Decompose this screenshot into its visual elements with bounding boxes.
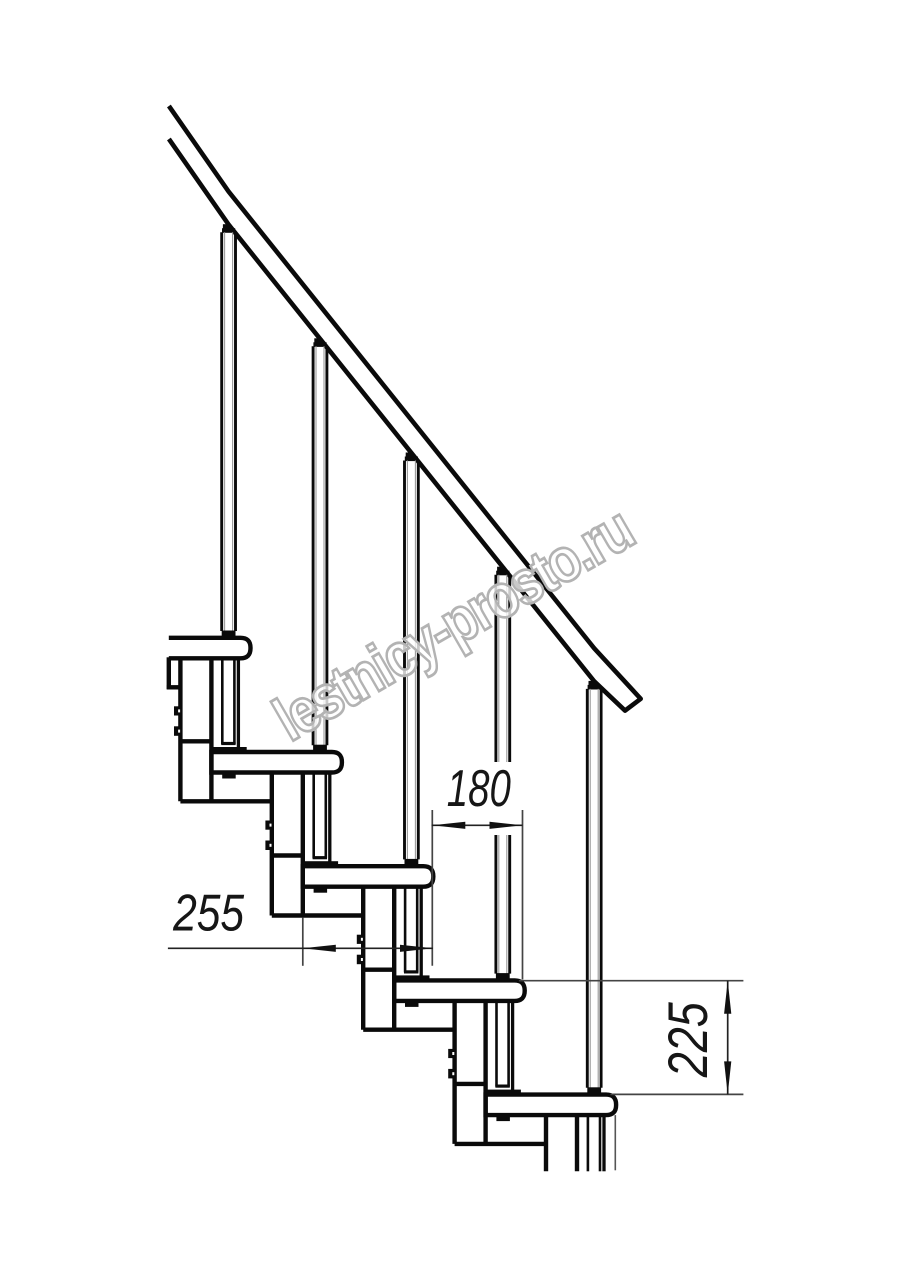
svg-text:180: 180 [447, 760, 511, 818]
svg-text:255: 255 [172, 884, 245, 942]
svg-text:225: 225 [656, 1002, 719, 1078]
